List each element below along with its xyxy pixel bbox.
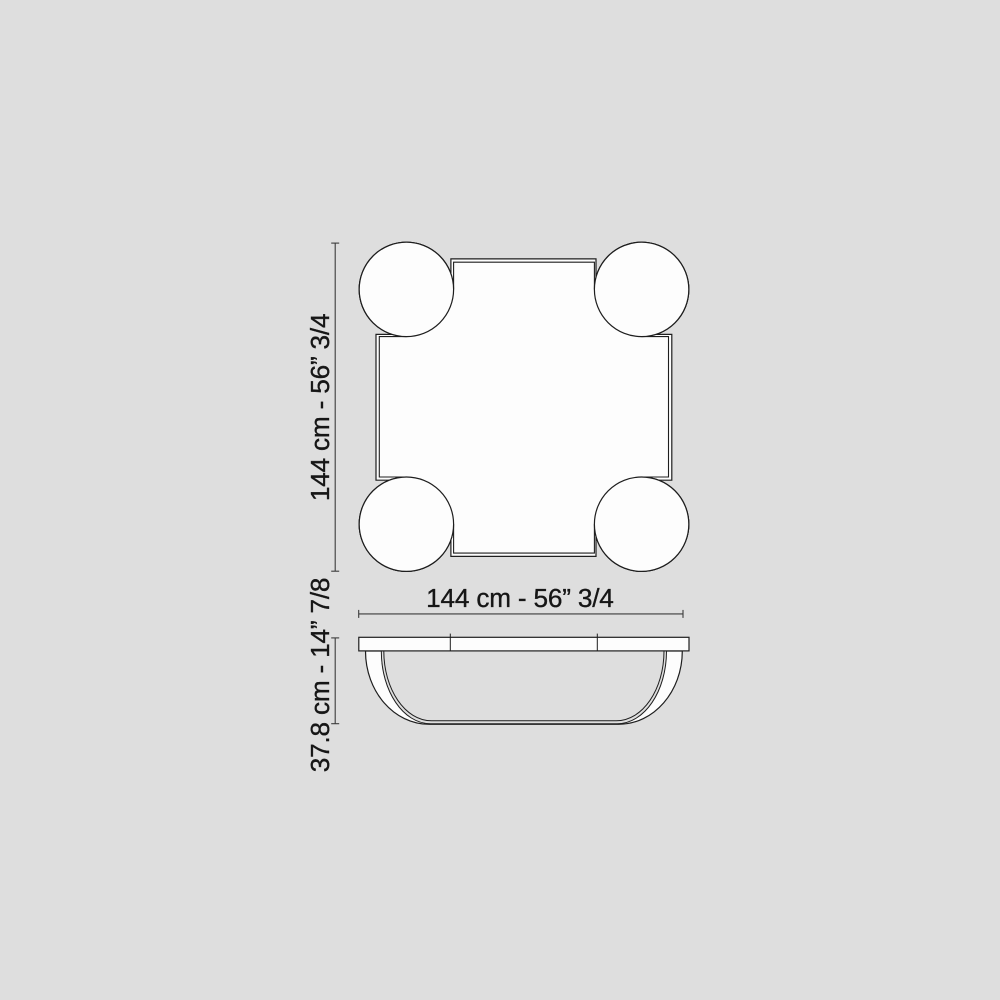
svg-text:144 cm - 56” 3/4: 144 cm - 56” 3/4 (426, 583, 613, 613)
svg-text:37.8 cm - 14” 7/8: 37.8 cm - 14” 7/8 (305, 578, 335, 773)
svg-text:144 cm - 56” 3/4: 144 cm - 56” 3/4 (305, 314, 335, 501)
